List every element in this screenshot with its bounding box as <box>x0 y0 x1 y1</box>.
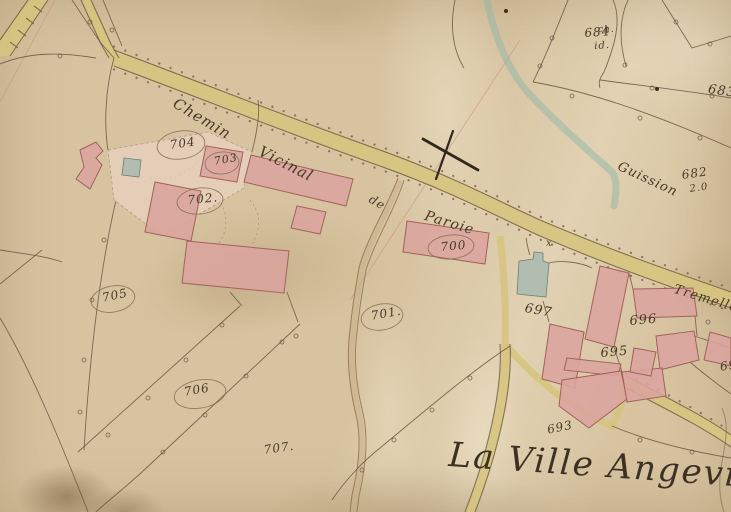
ditch <box>348 178 404 512</box>
parcel-number-682: 682 <box>681 165 708 180</box>
cadastral-map: Chemin Vicinal de Paroie Guission Tremel… <box>0 0 731 512</box>
parcel-number-694-partial: 69 <box>719 358 731 373</box>
annotation-ch: ch. <box>598 26 615 35</box>
parcel-number-704: 704 <box>169 135 196 150</box>
parcel-number-700: 700 <box>440 239 467 253</box>
annotation-x: x <box>546 239 553 249</box>
parcel-note-684: id. <box>594 41 610 52</box>
parcel-number-696: 696 <box>629 313 658 328</box>
parcel-number-683: 683 <box>707 83 731 100</box>
parcel-number-702: 702. <box>187 191 219 206</box>
map-canvas <box>0 0 731 512</box>
parcel-number-695: 695 <box>600 345 629 360</box>
